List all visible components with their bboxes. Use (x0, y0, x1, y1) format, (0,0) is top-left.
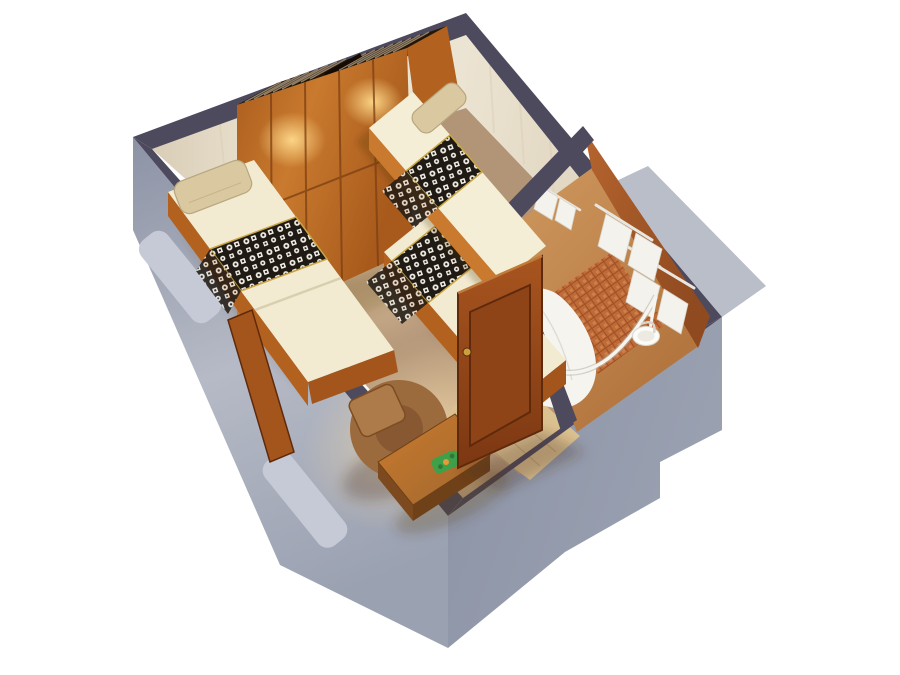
spotlight-glow-left (258, 112, 326, 168)
floorplan-canvas (0, 0, 900, 675)
floorplan-render (0, 0, 900, 675)
washbasin-inner (638, 331, 655, 342)
door-handle (463, 348, 471, 356)
